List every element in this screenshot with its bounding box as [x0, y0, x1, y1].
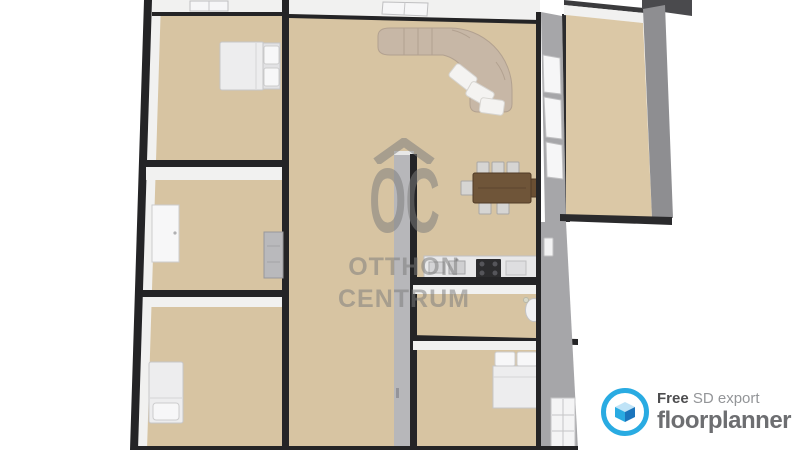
wall-room1-room2 [140, 160, 290, 167]
watermark-line2: CENTRUM [334, 285, 474, 314]
floorplanner-logo-icon [601, 388, 649, 436]
wall-face-room3 [143, 297, 283, 307]
radiator-cabinet [264, 232, 283, 278]
floorplanner-branding: Free SD export floorplanner [601, 388, 791, 436]
window-wall-edge-left [536, 12, 541, 222]
wardrobe-handle [173, 231, 176, 234]
dining-chair [492, 162, 504, 173]
dining-chair [477, 162, 489, 173]
sofa-pillow [479, 97, 505, 115]
toilet-roll [524, 298, 529, 303]
double-bed-top-left [220, 42, 280, 90]
window-panel [546, 142, 563, 179]
wall-room2-room3 [138, 290, 290, 297]
bed-pillow [264, 46, 279, 64]
brand-name: floorplanner [657, 409, 791, 433]
window-panel [543, 55, 561, 94]
burner [493, 271, 498, 276]
burner [493, 262, 498, 267]
burner [480, 262, 485, 267]
counter-module [506, 261, 526, 275]
window-bottom-right [551, 398, 575, 448]
dining-chair [507, 162, 519, 173]
bed-duvet [493, 366, 539, 408]
export-label: SD export [693, 390, 760, 407]
dining-chair [497, 203, 509, 214]
wall-face-room2 [146, 167, 284, 180]
wall-door-panel [544, 238, 553, 256]
right-wing [536, 0, 692, 450]
radiator-body [264, 232, 283, 278]
window-panel [544, 97, 562, 139]
bed-pillow [517, 352, 537, 366]
cooktop [476, 259, 501, 278]
burner [480, 271, 485, 276]
brand-tagline: Free SD export [657, 391, 791, 406]
right-wall-edge [536, 222, 541, 450]
left-wing [130, 0, 290, 450]
door-handle [396, 388, 399, 398]
wall-face-bedroom [413, 341, 543, 350]
floorplan-export-image: OC OTTHON CENTRUM Free SD export floorpl… [0, 0, 800, 450]
left-wing-right-wall [282, 0, 289, 450]
bed-pillow [153, 403, 179, 420]
brand-text: Free SD export floorplanner [657, 391, 791, 433]
free-label: Free [657, 390, 689, 407]
otthon-centrum-watermark: OC OTTHON CENTRUM [334, 138, 474, 314]
single-bed-bottom-left [149, 362, 183, 423]
bed-pillow [264, 68, 279, 86]
top-wall-edge-left [152, 12, 286, 16]
bed-pillow [495, 352, 515, 366]
bed-duvet [220, 42, 264, 90]
wardrobe [152, 205, 179, 262]
floorplanner-cube-icon [613, 400, 637, 424]
watermark-logo-letters: OC [368, 164, 441, 239]
balcony-floor [566, 15, 652, 218]
dining-chair [479, 203, 491, 214]
bottom-cut-wall [137, 446, 578, 450]
watermark-line1: OTTHON [334, 253, 474, 282]
